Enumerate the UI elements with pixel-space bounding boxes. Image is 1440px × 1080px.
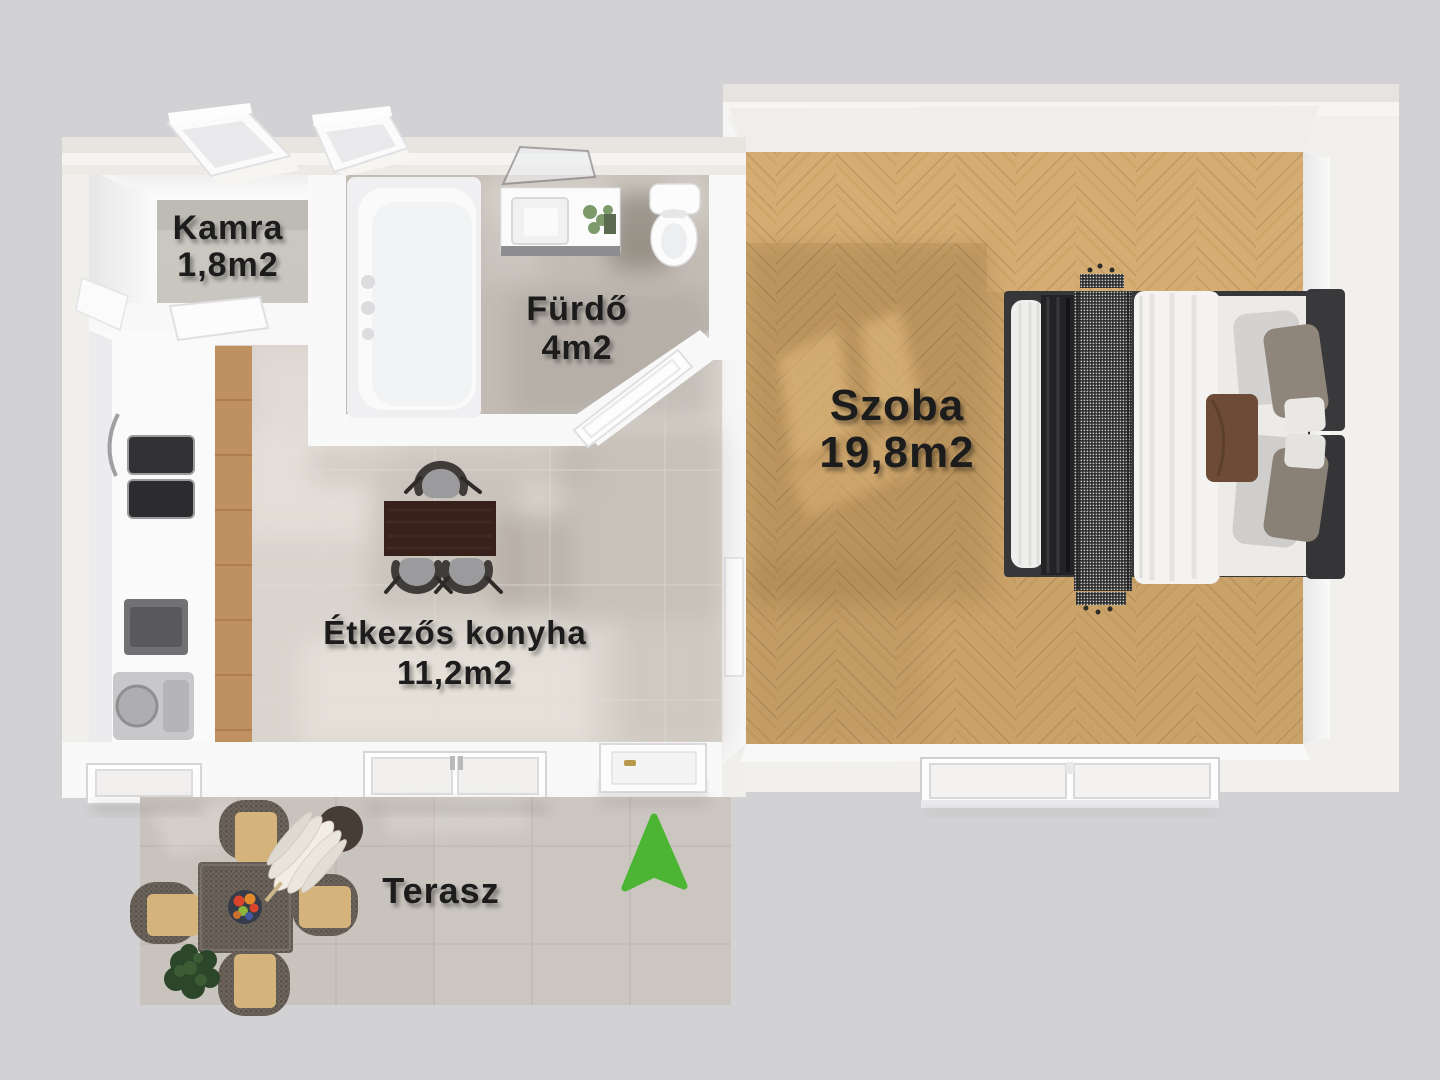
svg-text:Terasz: Terasz [382,870,499,911]
svg-text:Kamra: Kamra [173,209,284,247]
svg-text:11,2m2: 11,2m2 [397,654,513,691]
svg-text:19,8m2: 19,8m2 [819,428,974,477]
svg-text:Szoba: Szoba [830,381,965,430]
svg-text:Étkezős konyha: Étkezős konyha [323,614,586,651]
svg-text:4m2: 4m2 [541,329,612,367]
svg-text:1,8m2: 1,8m2 [177,246,278,284]
svg-text:Fürdő: Fürdő [526,290,627,328]
